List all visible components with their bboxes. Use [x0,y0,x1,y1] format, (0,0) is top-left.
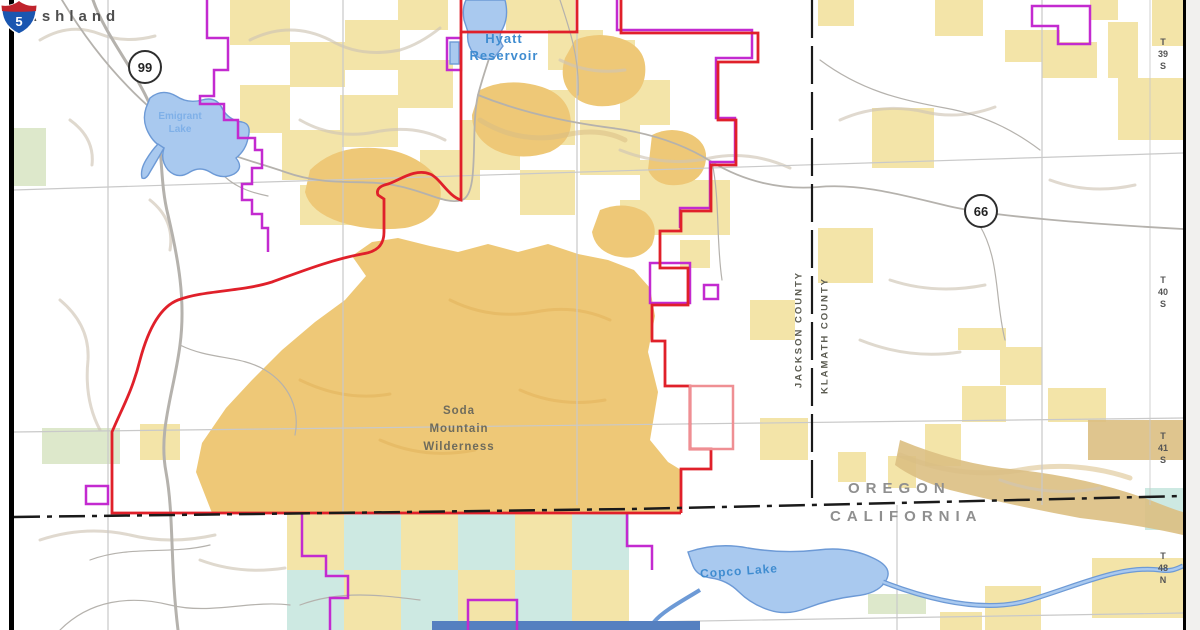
river-bottom-edge [432,621,700,630]
right-neatline [1183,0,1186,630]
township-label-t39s: T 39 S [1146,36,1180,72]
klamath-county-label: KLAMATH COUNTY [820,247,831,425]
route-99-shield: 99 [128,50,162,84]
california-label: CALIFORNIA [830,508,983,525]
hyatt-reservoir-label: Hyatt Reservoir [448,30,560,64]
oregon-label: OREGON [848,480,951,497]
city-label-ashland: Ashland [26,8,120,25]
township-label-t40s: T 40 S [1146,274,1180,310]
route-66-number: 66 [974,204,988,219]
salmon-boundary-block [690,386,733,449]
interstate-5-number: 5 [15,14,22,29]
emigrant-lake-label: Emigrant Lake [138,110,222,136]
route-99-number: 99 [138,60,152,75]
route-66-shield: 66 [964,194,998,228]
jackson-county-label: JACKSON COUNTY [794,241,805,419]
soda-mountain-wilderness-label: Soda Mountain Wilderness [398,402,520,456]
township-label-t41s: T 41 S [1146,430,1180,466]
left-neatline [9,0,14,630]
shield-top-band [2,1,37,12]
topographic-map: Ashland 99 66 5 Hyatt Reservoir Emigrant… [0,0,1200,630]
interstate-5-shield: 5 [0,0,38,35]
right-margin [1186,0,1200,630]
township-label-t48n: T 48 N [1146,550,1180,586]
map-canvas [0,0,1200,630]
